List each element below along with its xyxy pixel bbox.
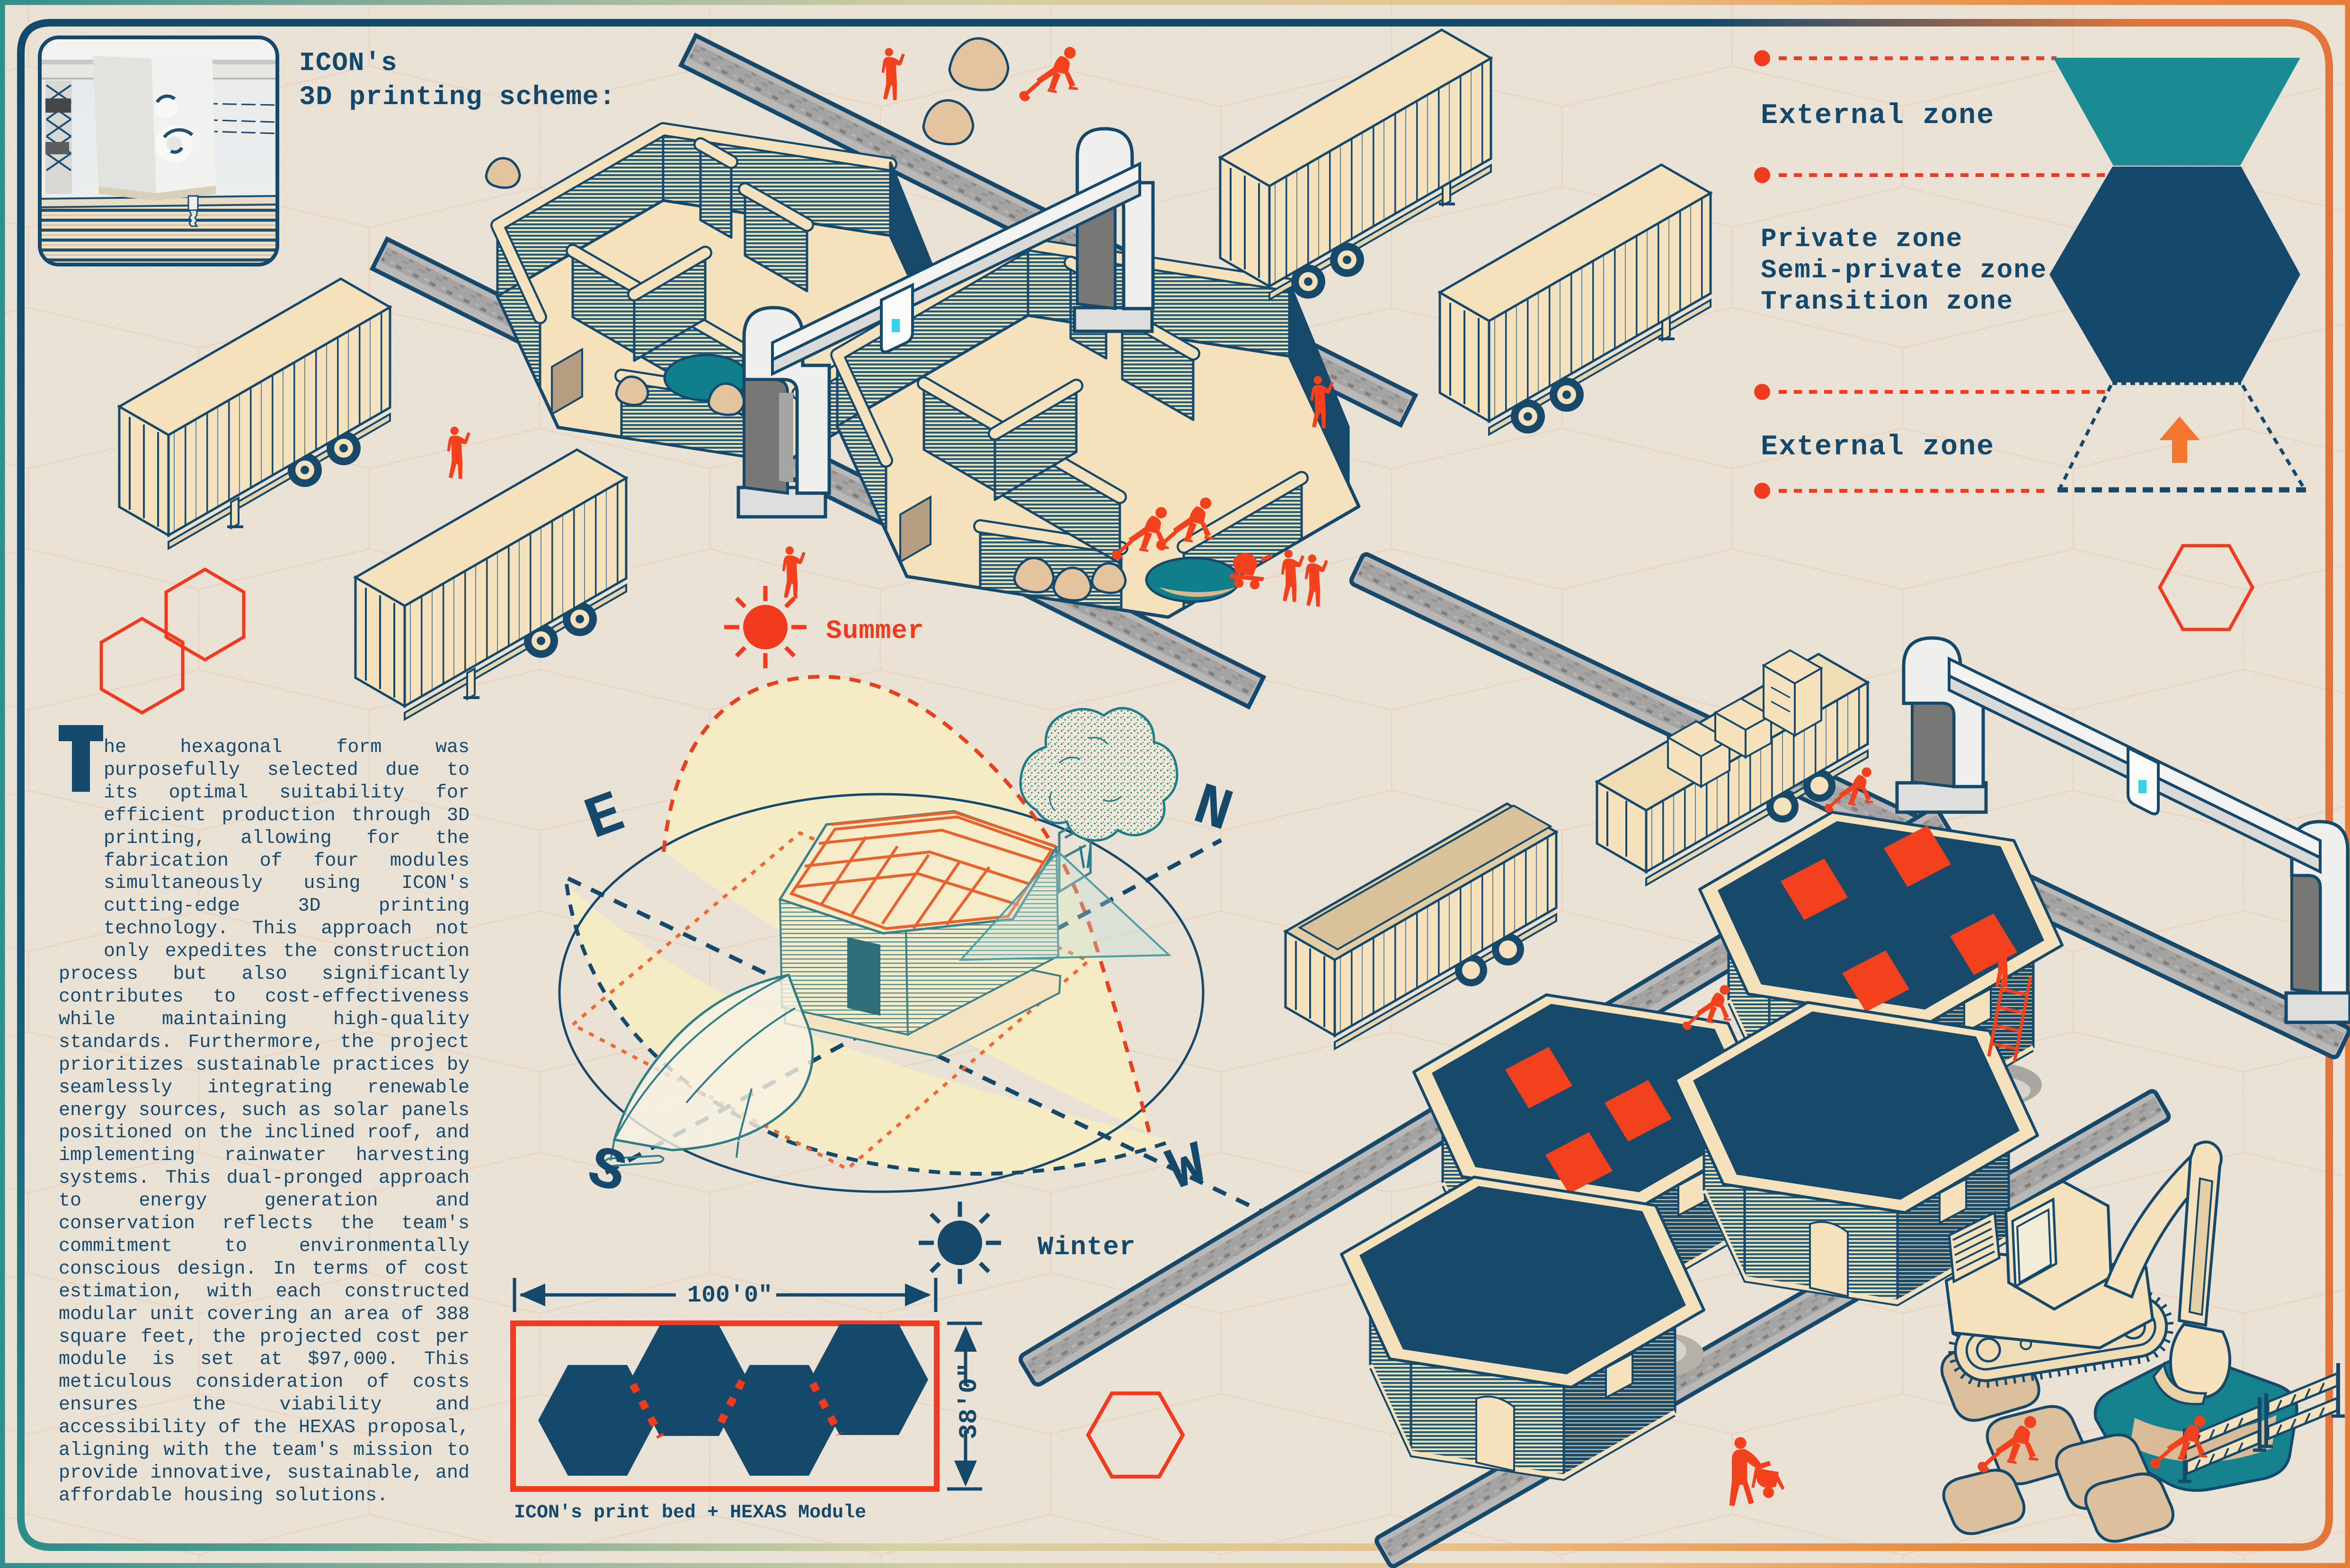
svg-text:External zone: External zone — [1761, 100, 1995, 132]
svg-text:ICON's print bed + HEXAS Modul: ICON's print bed + HEXAS Module — [514, 1502, 866, 1524]
svg-text:Private zone: Private zone — [1761, 224, 1963, 254]
svg-text:38'0": 38'0" — [955, 1363, 984, 1439]
svg-text:Summer: Summer — [826, 616, 924, 646]
svg-text:3D printing scheme:: 3D printing scheme: — [299, 82, 616, 113]
svg-text:Semi-private zone: Semi-private zone — [1761, 255, 2047, 285]
svg-text:Transition zone: Transition zone — [1761, 286, 2013, 317]
svg-text:ICON's: ICON's — [299, 48, 398, 78]
svg-text:External zone: External zone — [1761, 431, 1995, 463]
svg-text:100'0": 100'0" — [687, 1282, 772, 1309]
svg-text:Winter: Winter — [1038, 1232, 1136, 1262]
